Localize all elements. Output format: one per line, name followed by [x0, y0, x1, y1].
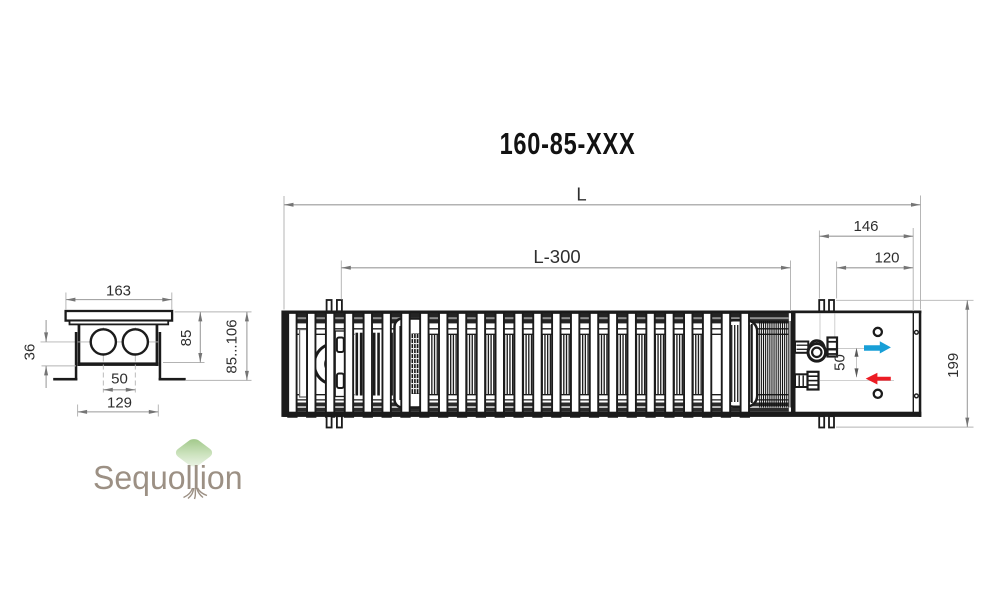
- svg-text:L: L: [576, 183, 586, 204]
- svg-text:160-85-XXX: 160-85-XXX: [500, 126, 636, 161]
- svg-text:36: 36: [22, 344, 39, 361]
- svg-text:146: 146: [853, 218, 878, 235]
- svg-text:85...106: 85...106: [223, 319, 240, 373]
- svg-text:50: 50: [832, 354, 849, 371]
- svg-text:L-300: L-300: [533, 246, 580, 267]
- svg-text:50: 50: [111, 371, 128, 388]
- svg-text:120: 120: [874, 250, 899, 267]
- svg-text:85: 85: [178, 330, 195, 347]
- svg-text:Sequollion: Sequollion: [93, 459, 243, 496]
- svg-text:129: 129: [107, 394, 132, 411]
- svg-text:163: 163: [106, 283, 131, 300]
- svg-text:199: 199: [945, 353, 962, 378]
